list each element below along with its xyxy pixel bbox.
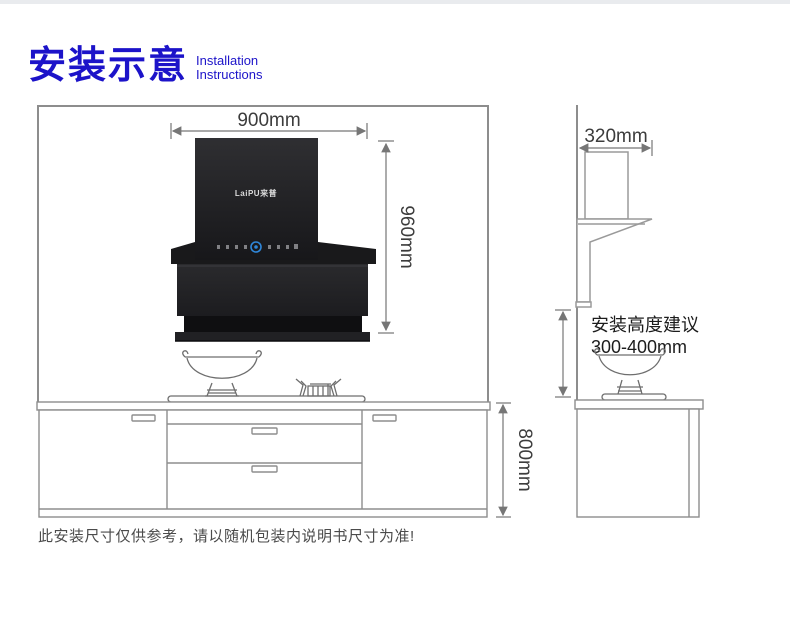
gas-burner-icon <box>296 379 341 396</box>
cooktop-front <box>168 351 365 402</box>
disclaimer-text: 此安装尺寸仅供参考，请以随机包装内说明书尺寸为准! <box>38 525 415 546</box>
cooktop-base <box>168 396 365 402</box>
hood-control-icon <box>268 245 271 249</box>
range-hood-front: LaiPU来普 <box>171 138 376 341</box>
cabinet-front <box>37 402 490 517</box>
brand-logo: LaiPU来普 <box>235 188 277 198</box>
hood-control-icon <box>286 245 289 249</box>
hood-control-icon <box>217 245 220 249</box>
front-view: LaiPU来普 <box>37 106 535 517</box>
side-view: 320mm 安装高度建议 300-400mm <box>555 105 703 517</box>
dim-hood-depth-label: 320mm <box>584 126 647 147</box>
hood-power-button-dot <box>254 245 258 249</box>
install-height-note-line2: 300-400mm <box>591 337 687 357</box>
hood-chimney-side <box>585 152 628 219</box>
hood-control-icon <box>294 244 298 249</box>
dim-install-height <box>555 310 571 397</box>
right-door-handle <box>373 415 396 421</box>
dim-cabinet-height: 800mm <box>496 403 535 517</box>
wok-icon <box>183 351 262 396</box>
cabinet-side <box>575 400 703 517</box>
hood-control-icon <box>235 245 238 249</box>
drawer-handle-bottom <box>252 466 277 472</box>
hood-control-icon <box>226 245 229 249</box>
cooktop-base-side <box>602 394 666 400</box>
dim-hood-height: 960mm <box>378 141 417 333</box>
hood-foot-plate <box>576 302 591 307</box>
product-installation-page: 安装示意 Installation Instructions <box>0 0 790 625</box>
left-door-handle <box>132 415 155 421</box>
hood-body-panel <box>177 264 368 316</box>
dim-hood-width: 900mm <box>171 110 367 139</box>
hood-bottom-plate <box>175 332 370 341</box>
countertop <box>37 402 490 410</box>
countertop-side <box>575 400 703 409</box>
dim-cabinet-height-label: 800mm <box>514 428 535 491</box>
install-height-note-line1: 安装高度建议 <box>591 315 699 335</box>
hood-canopy-side <box>577 219 652 302</box>
wok-side-icon <box>595 349 666 400</box>
dim-hood-height-label: 960mm <box>396 205 417 268</box>
hood-control-icon <box>244 245 247 249</box>
hood-control-icon <box>277 245 280 249</box>
cabinet-body-side <box>577 409 699 517</box>
hood-lower-recess <box>184 316 362 332</box>
drawer-handle-top <box>252 428 277 434</box>
dim-hood-width-label: 900mm <box>237 110 300 131</box>
range-hood-side <box>576 152 652 307</box>
